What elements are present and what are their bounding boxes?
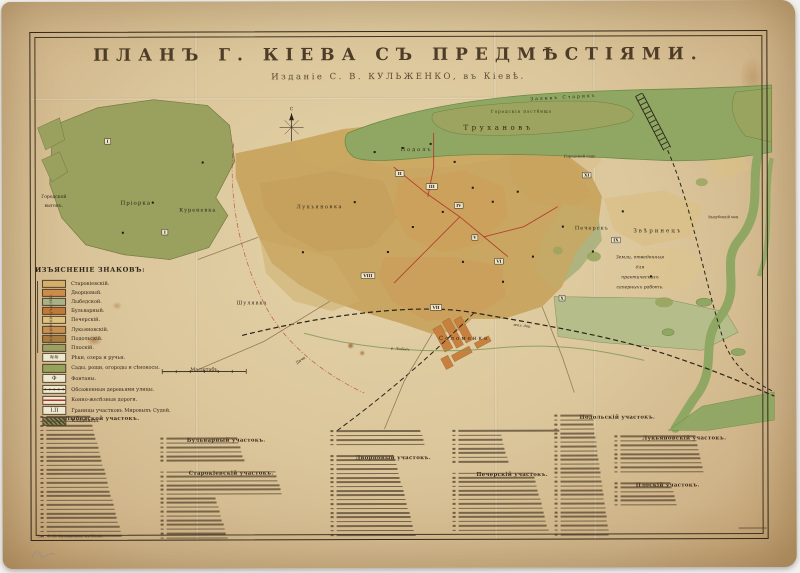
legend-side-bracket: Полицейскіе участки. xyxy=(34,281,39,427)
legend-district-item: Бульварный. xyxy=(42,306,167,316)
index-header: Плоскій участокъ. xyxy=(614,474,720,481)
district-numeral: VII xyxy=(430,305,441,311)
index-entry xyxy=(555,532,615,537)
map-subtitle: Изданіе С. В. КУЛЬЖЕНКО, въ Кіевѣ. xyxy=(1,71,795,83)
map-label: Земли, отведенныя xyxy=(616,254,664,260)
index-entry xyxy=(615,503,721,508)
index-header: Дворцовый участокъ. xyxy=(330,446,448,453)
pencil-mark xyxy=(31,548,57,562)
legend-symbol-item: ≋≋Рѣки, озера и ручьи. xyxy=(42,352,167,363)
scale-bar: Масштабъ xyxy=(158,356,250,375)
district-numeral: IX xyxy=(612,237,621,243)
legend-district-label: Бульварный. xyxy=(71,308,104,314)
district-numeral: II xyxy=(395,171,404,177)
legend-district-item: Лыбедской. xyxy=(42,297,167,307)
legend-district-item: Плоскій. xyxy=(42,343,167,353)
legend-district-item: Дворцовый. xyxy=(42,288,167,298)
svg-text:VI: VI xyxy=(495,259,501,264)
map-label: Городской xyxy=(41,194,66,200)
map-label: жел. дор. xyxy=(513,323,532,329)
map-label: Городскія пастбища xyxy=(491,109,552,114)
legend-district-label: Плоскій. xyxy=(71,345,94,351)
map-title: ПЛАНЪ Г. КІЕВА СЪ ПРЕДМѢСТІЯМИ. xyxy=(1,44,795,66)
legend-side-label: Полицейскіе участки. xyxy=(48,294,53,345)
index-header: Печерскій участокъ. xyxy=(452,464,566,471)
svg-text:VII: VII xyxy=(431,305,439,310)
district-numeral: XI xyxy=(582,172,591,178)
map-scan-stage: С Заливъ СтарикъГородскія пастбищаТрухан… xyxy=(0,0,800,573)
map-label: практическихъ xyxy=(621,275,658,280)
legend-district-label: Печерскій. xyxy=(71,317,100,323)
map-label: для xyxy=(636,264,645,270)
legend-district-item: Лукьяновскій. xyxy=(42,325,167,335)
index-header: Лукьяновскій участокъ. xyxy=(614,427,720,434)
map-label: Городской садъ xyxy=(564,153,596,158)
green-symbol-icon xyxy=(42,364,66,373)
map-label: Печерскъ xyxy=(575,225,609,231)
legend-swatch xyxy=(42,325,66,333)
tram-symbol-icon xyxy=(42,396,66,405)
district-numeral: IV xyxy=(454,203,463,209)
map-label: Куреневка xyxy=(179,207,216,213)
index-header: Подольскій участокъ. xyxy=(554,406,614,413)
map-label: Дача xyxy=(295,355,307,366)
legend-district-label: Лукьяновскій. xyxy=(71,327,108,333)
index-entry xyxy=(161,535,291,540)
legend-district-label: Старокіевскій. xyxy=(71,281,109,287)
svg-text:XI: XI xyxy=(584,173,589,178)
legend-title: ИЗЪЯСНЕНІЕ ЗНАКОВЪ: xyxy=(35,266,114,272)
legend-district-item: Подольскій. xyxy=(42,334,167,344)
map-label: р. Лыбедь xyxy=(391,346,410,352)
map-label: саперныхъ работъ. xyxy=(617,283,665,290)
legend-district-label: Подольскій. xyxy=(71,336,103,342)
svg-text:I: I xyxy=(107,139,109,144)
index-column-4: Печерскій участокъ. xyxy=(452,429,566,533)
index-header: Лыбедской участокъ. xyxy=(40,408,156,415)
map-label: Выдубецкій мон. xyxy=(708,215,739,219)
map-label: Пріорка xyxy=(120,201,151,207)
svg-text:IX: IX xyxy=(613,237,619,242)
district-numeral: I xyxy=(162,229,168,235)
index-column-1: Лыбедской участокъ. xyxy=(40,408,156,538)
svg-text:С: С xyxy=(290,106,294,112)
district-numeral: VI xyxy=(495,259,504,265)
district-numeral: VIII xyxy=(361,273,375,279)
map-label: Лукьяновка xyxy=(297,204,343,210)
fountain-symbol-icon: Ф xyxy=(42,374,66,383)
index-header: Бульварный участокъ. xyxy=(160,429,290,436)
legend-swatch xyxy=(42,335,66,343)
water-symbol-icon: ≋≋ xyxy=(42,353,66,362)
legend-district-label: Лыбедской. xyxy=(71,299,102,305)
legend-swatch xyxy=(42,316,66,324)
index-entry xyxy=(453,528,567,533)
legend-symbol-label: Фонтаны. xyxy=(71,376,96,382)
legend-symbol-label: Обсаженныя деревьями улицы. xyxy=(71,386,154,392)
legend-district-item: Старокіевскій. xyxy=(42,279,167,289)
legend-district-label: Дворцовый. xyxy=(71,290,102,296)
trees-symbol-icon xyxy=(42,385,66,394)
legend-symbol-item: ФФонтаны. xyxy=(42,373,167,384)
legend-district-item: Печерскій. xyxy=(42,315,167,325)
legend-symbol-item: Конно-желѣзныя дороги. xyxy=(42,394,167,405)
legend-symbol-item: Обсаженныя деревьями улицы. xyxy=(42,384,167,395)
index-column-5: Подольскій участокъ. xyxy=(554,406,614,536)
legend-symbol-label: Рѣки, озера и ручьи. xyxy=(71,355,125,361)
svg-text:VIII: VIII xyxy=(362,273,372,278)
imprint-right-mark xyxy=(739,527,767,529)
map-label: Звѣринецъ xyxy=(633,227,682,234)
map-label: выгонъ. xyxy=(45,204,64,209)
imprint: Лит. С. В. Кульженко, въ Кіевѣ. xyxy=(37,526,171,545)
index-entry xyxy=(331,532,449,537)
index-column-3: Дворцовый участокъ. xyxy=(330,429,448,537)
legend-swatch xyxy=(42,289,66,297)
legend-swatch xyxy=(42,298,66,306)
svg-text:II: II xyxy=(398,171,402,176)
legend-symbol-label: Сады, рощи, огороды и сѣнокосы. xyxy=(71,365,160,371)
map-label: Трухановъ xyxy=(463,124,533,132)
legend-district-list: Старокіевскій.Дворцовый.Лыбедской.Бульва… xyxy=(35,279,167,353)
legend-swatch xyxy=(42,307,66,315)
map-label: Шулявка xyxy=(237,300,268,306)
index-header: Старокіевскій участокъ. xyxy=(160,463,290,470)
svg-text:I: I xyxy=(164,230,166,235)
legend: ИЗЪЯСНЕНІЕ ЗНАКОВЪ: Полицейскіе участки.… xyxy=(35,266,167,427)
district-numeral: V xyxy=(472,235,478,241)
legend-symbol-item: Сады, рощи, огороды и сѣнокосы. xyxy=(42,363,167,374)
scale-label: Масштабъ xyxy=(191,367,218,370)
district-numeral: X xyxy=(559,295,565,301)
legend-swatch xyxy=(42,279,66,287)
suburb-kurenivka-priorka xyxy=(38,99,235,260)
legend-swatch xyxy=(42,344,66,352)
paper-sheet: С Заливъ СтарикъГородскія пастбищаТрухан… xyxy=(1,0,796,569)
map-label: Соломенка xyxy=(439,336,489,342)
symbol-glyph: Ф xyxy=(48,377,60,381)
district-numeral: III xyxy=(426,184,437,190)
symbol-glyph: ≋≋ xyxy=(48,356,60,360)
compass-rose: С xyxy=(280,106,304,141)
map-label: Подолъ xyxy=(401,147,433,153)
index-column-6: Лукьяновскій участокъ.Плоскій участокъ. xyxy=(614,427,720,507)
svg-text:IV: IV xyxy=(456,203,462,208)
legend-symbol-label: Конно-желѣзныя дороги. xyxy=(71,397,137,403)
svg-text:III: III xyxy=(429,184,435,189)
index-column-2: Бульварный участокъ.Старокіевскій участо… xyxy=(160,429,290,540)
district-numeral: I xyxy=(105,139,111,145)
